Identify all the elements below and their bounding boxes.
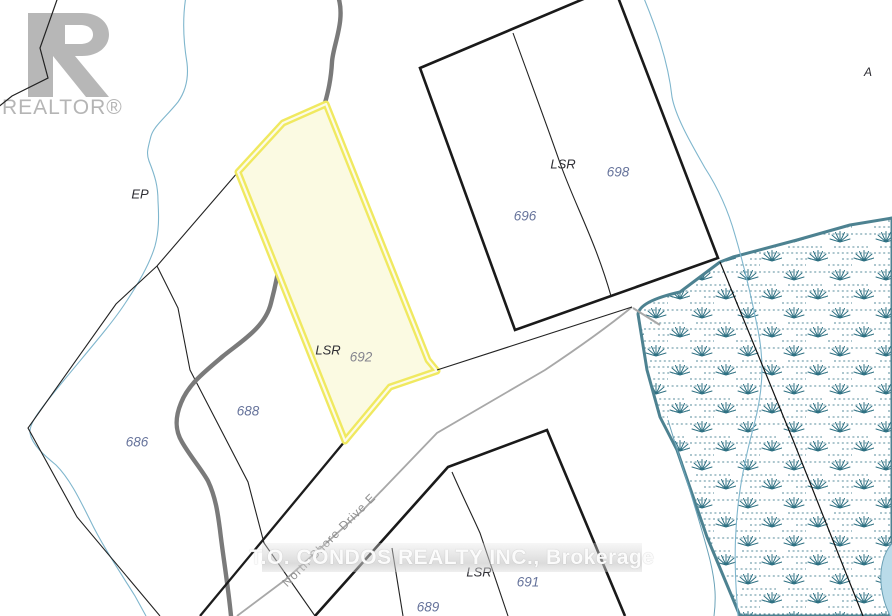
highlighted-parcel-692 <box>238 104 437 441</box>
boundary-from-692-corner <box>157 172 238 266</box>
zone-label-lsr-692: LSR <box>315 344 340 357</box>
brokerage-watermark: T.O. CONDOS REALTY INC., Brokerage <box>262 543 642 572</box>
zone-label-a: A <box>864 66 872 78</box>
stream-west <box>30 0 188 616</box>
zone-label-ep: EP <box>131 188 148 201</box>
parcel-number-688: 688 <box>237 404 260 418</box>
parcel-number-689: 689 <box>417 600 440 614</box>
boundary-692-to-road <box>437 307 632 370</box>
boundary-zigzag-northwest <box>0 0 58 108</box>
zone-label-lsr-upper: LSR <box>550 158 575 171</box>
parcel-number-686: 686 <box>126 435 149 449</box>
wetland-area <box>638 218 892 616</box>
parcel-number-698: 698 <box>607 165 630 179</box>
parcel-number-696: 696 <box>514 209 537 223</box>
parcel-number-691: 691 <box>517 575 540 589</box>
plat-map: REALTOR® <box>0 0 892 616</box>
parcel-number-692: 692 <box>350 350 373 364</box>
parcel-689-691-outline <box>315 430 625 616</box>
map-canvas <box>0 0 892 616</box>
